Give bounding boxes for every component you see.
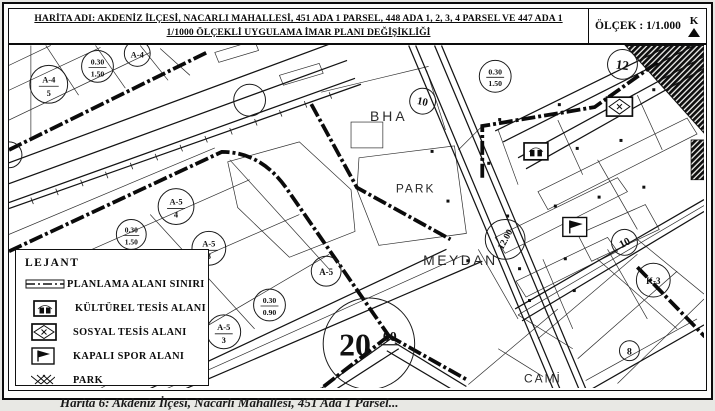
svg-text:0.30: 0.30 — [488, 67, 502, 76]
label-bha: BHA — [370, 108, 408, 124]
road-width-circle-10a: 10 — [407, 86, 438, 117]
map-header: HARİTA ADI: AKDENİZ İLÇESİ, NACARLI MAHA… — [8, 8, 707, 44]
legend-item-kulturel: KÜLTÜREL TESİS ALANI — [25, 299, 208, 317]
svg-text:0.30: 0.30 — [263, 296, 277, 305]
indoor-sports-icon — [25, 347, 73, 365]
zoning-circle-030-150-c: 0.30 1.50 — [479, 60, 511, 92]
map-title-box: HARİTA ADI: AKDENİZ İLÇESİ, NACARLI MAHA… — [8, 8, 589, 44]
svg-text:12: 12 — [615, 57, 630, 74]
svg-text:K-3: K-3 — [646, 276, 661, 286]
scale-label: ÖLÇEK : 1/1.000 — [595, 20, 681, 32]
legend-label: KAPALI SPOR ALANI — [73, 351, 184, 362]
zoning-circle-030-150-a: 0.30 1.50 — [82, 50, 114, 82]
svg-text:8: 8 — [627, 347, 632, 358]
svg-text:3: 3 — [222, 335, 226, 345]
road-median-ticks — [31, 92, 332, 204]
svg-text:0.30: 0.30 — [125, 225, 138, 234]
scale-box: ÖLÇEK : 1/1.000 K — [589, 8, 707, 44]
svg-text:0.90: 0.90 — [263, 308, 277, 317]
cultural-facility-icon — [524, 143, 548, 160]
legend-item-park: PARK — [25, 371, 208, 389]
north-indicator: K — [688, 16, 700, 37]
map-title-line2: 1/1000 ÖLÇEKLİ UYGULAMA İMAR PLANI DEĞİŞ… — [167, 26, 431, 40]
north-arrow-icon — [688, 28, 700, 37]
tree-dots — [431, 88, 656, 302]
svg-text:A-5: A-5 — [319, 267, 333, 277]
map-title-line1: HARİTA ADI: AKDENİZ İLÇESİ, NACARLI MAHA… — [34, 12, 562, 26]
social-facility-icon — [25, 323, 73, 341]
legend-title: LEJANT — [25, 257, 208, 269]
svg-text:A-4: A-4 — [131, 49, 145, 59]
svg-text:12.00: 12.00 — [497, 228, 516, 252]
svg-text:A-5: A-5 — [169, 197, 182, 207]
svg-text:20: 20 — [339, 328, 371, 363]
svg-text:1.50: 1.50 — [125, 237, 138, 246]
label-meydan: MEYDAN — [423, 252, 497, 268]
svg-text:10: 10 — [416, 95, 430, 109]
svg-text:1.50: 1.50 — [91, 69, 105, 78]
cultural-facility-icon — [25, 300, 75, 317]
park-stipple-symbol — [25, 374, 73, 386]
svg-text:A-5: A-5 — [217, 322, 230, 332]
scanned-plan-page: HARİTA ADI: AKDENİZ İLÇESİ, NACARLI MAHA… — [2, 2, 713, 400]
legend-label: PLANLAMA ALANI SINIRI — [67, 279, 205, 290]
svg-text:1.50: 1.50 — [488, 79, 502, 88]
label-cami: CAMİ — [524, 372, 562, 386]
svg-text:00: 00 — [383, 330, 397, 345]
figure-caption: Harita 6: Akdeniz İlçesi, Nacarlı Mahall… — [60, 395, 399, 411]
map-frame: A-4 5 0.30 1.50 A-4 A-5 4 — [8, 44, 707, 391]
label-park: PARK — [396, 182, 436, 196]
svg-text:A-5: A-5 — [202, 238, 215, 248]
zoning-circle-a4-5: A-4 5 — [30, 65, 68, 103]
zoning-circle-030-090: 0.30 0.90 — [254, 289, 286, 321]
indoor-sports-icon — [563, 217, 587, 236]
plan-boundary-line-symbol — [25, 277, 67, 291]
zoning-circle-030-150-b: 0.30 1.50 — [116, 219, 146, 249]
svg-text:A-4: A-4 — [42, 74, 56, 84]
legend-label: SOSYAL TESİS ALANI — [73, 327, 187, 338]
zoning-circle-a4-b: A-4 — [124, 45, 150, 66]
legend-label: PARK — [73, 375, 103, 386]
road-width-circle-8: 8 — [619, 341, 639, 361]
svg-text:5: 5 — [47, 88, 51, 98]
legend-box: LEJANT PLANLAMA ALANI SINIRI — [15, 249, 209, 386]
legend-item-planlama: PLANLAMA ALANI SINIRI — [25, 275, 208, 293]
social-facility-icon — [607, 97, 633, 116]
zoning-circle-a5: A-5 — [311, 256, 341, 286]
legend-label: KÜLTÜREL TESİS ALANI — [75, 303, 206, 314]
zoning-circle-a5-3-b: A-5 3 — [207, 315, 241, 349]
svg-text:0.30: 0.30 — [91, 57, 105, 66]
north-letter: K — [690, 16, 699, 27]
legend-item-sosyal: SOSYAL TESİS ALANI — [25, 323, 208, 341]
legend-item-spor: KAPALI SPOR ALANI — [25, 347, 208, 365]
